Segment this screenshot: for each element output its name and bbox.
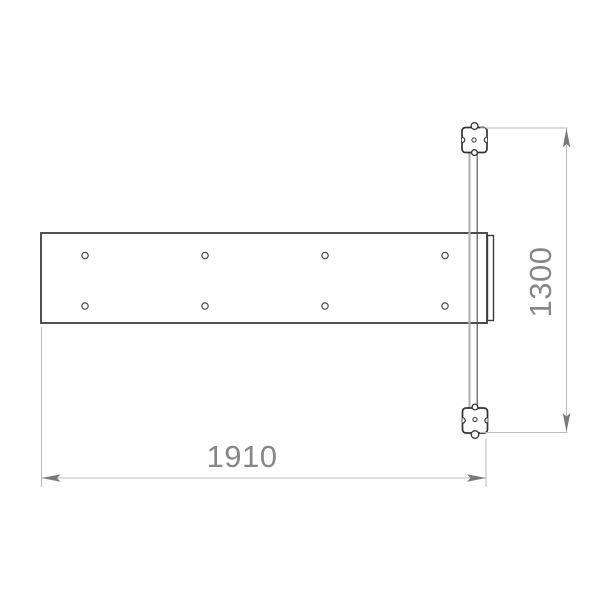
mounting-hole xyxy=(202,252,208,258)
mounting-hole xyxy=(442,252,448,258)
top-block-notch-right xyxy=(484,137,487,142)
top-block-center-hole xyxy=(472,138,476,142)
plate xyxy=(41,233,494,323)
width-dimension: 1910 xyxy=(42,327,487,487)
dimension-label-width: 1910 xyxy=(207,439,278,474)
mounting-hole xyxy=(82,303,88,309)
mounting-hole xyxy=(442,303,448,309)
bottom-block-notch-left xyxy=(463,418,466,423)
bottom-block-knob-top xyxy=(472,404,478,410)
mounting-hole xyxy=(322,303,328,309)
top-block-notch-left xyxy=(462,137,465,142)
bottom-block-knob-bottom xyxy=(471,431,479,439)
dimension-label-height: 1300 xyxy=(523,247,558,318)
bottom-block-center-hole xyxy=(473,417,477,421)
top-block-knob-bottom xyxy=(472,150,478,156)
mounting-hole xyxy=(202,303,208,309)
technical-drawing: 1300 1910 xyxy=(0,0,600,600)
plate-end-cap xyxy=(488,236,494,321)
mounting-hole xyxy=(82,252,88,258)
plate-outline xyxy=(41,233,487,323)
bottom-carriage-block xyxy=(463,404,488,438)
top-block-knob-top xyxy=(471,123,478,130)
mounting-hole xyxy=(322,252,328,258)
bottom-block-notch-right xyxy=(485,418,488,423)
